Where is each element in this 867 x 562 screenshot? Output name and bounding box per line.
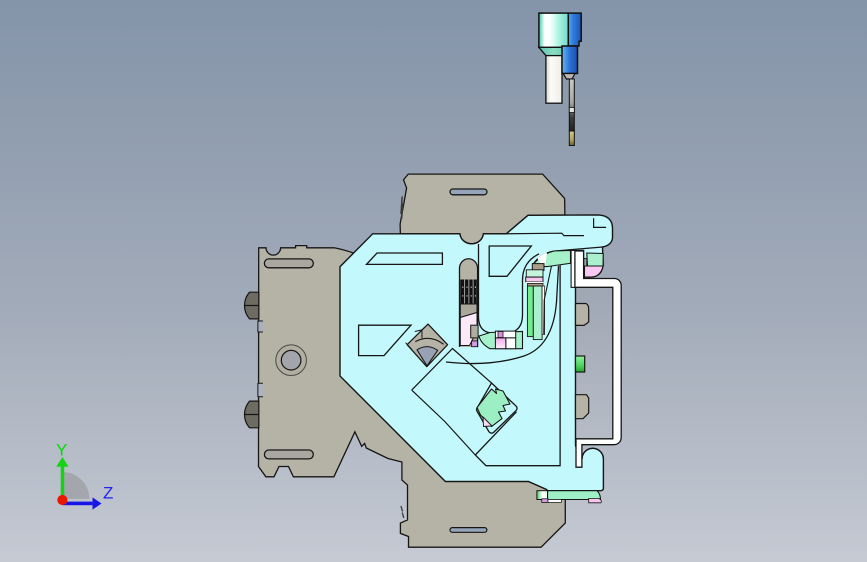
svg-text:Y: Y — [56, 441, 67, 460]
svg-text:Z: Z — [103, 484, 113, 503]
